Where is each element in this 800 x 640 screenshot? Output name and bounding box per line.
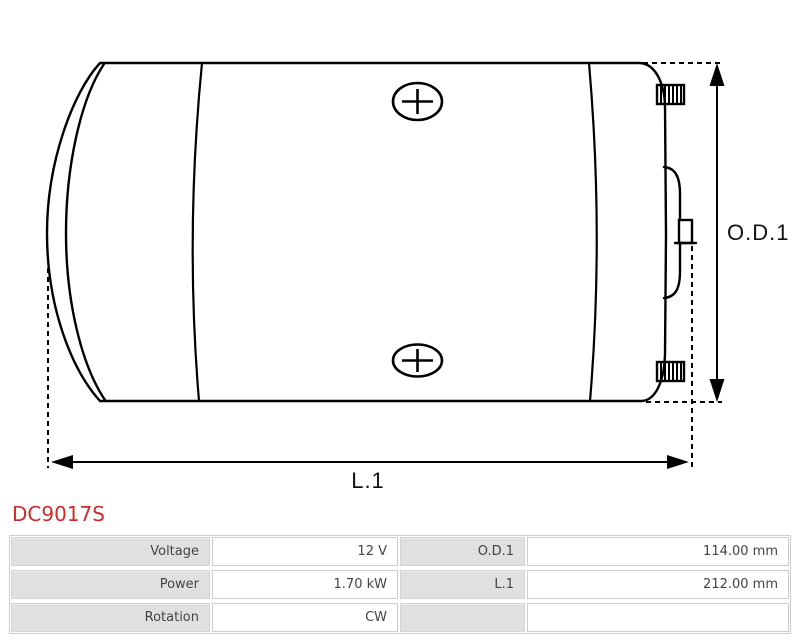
- specifications-table: Voltage 12 V O.D.1 114.00 mm Power 1.70 …: [9, 535, 791, 634]
- product-drawing-section: O.D.1 L.1 DC9017S Voltage 12 V O.D.1 114…: [0, 0, 800, 640]
- terminal-stud-top: [657, 85, 684, 104]
- motor-technical-drawing: [0, 0, 800, 500]
- spec-label-cell: Voltage: [11, 537, 210, 566]
- arrow-left-icon: [51, 455, 73, 469]
- terminal-stub: [679, 220, 692, 243]
- spec-label-cell: [400, 603, 525, 632]
- spec-label-cell: Power: [11, 570, 210, 599]
- od1-dimension-label: O.D.1: [727, 220, 789, 246]
- arrow-down-icon: [710, 379, 725, 402]
- arrow-up-icon: [710, 63, 725, 86]
- spec-value-cell: 114.00 mm: [527, 537, 789, 566]
- arrow-right-icon: [667, 455, 689, 469]
- terminal-stud-bottom: [657, 362, 684, 381]
- motor-body-outline: [47, 63, 666, 401]
- spec-label-cell: Rotation: [11, 603, 210, 632]
- spec-value-cell: CW: [212, 603, 398, 632]
- spec-value-cell: 212.00 mm: [527, 570, 789, 599]
- spec-value-cell: [527, 603, 789, 632]
- part-number-title: DC9017S: [12, 502, 105, 526]
- spec-label-cell: O.D.1: [400, 537, 525, 566]
- spec-label-cell: L.1: [400, 570, 525, 599]
- l1-dimension-label: L.1: [338, 468, 398, 494]
- spec-value-cell: 12 V: [212, 537, 398, 566]
- spec-value-cell: 1.70 kW: [212, 570, 398, 599]
